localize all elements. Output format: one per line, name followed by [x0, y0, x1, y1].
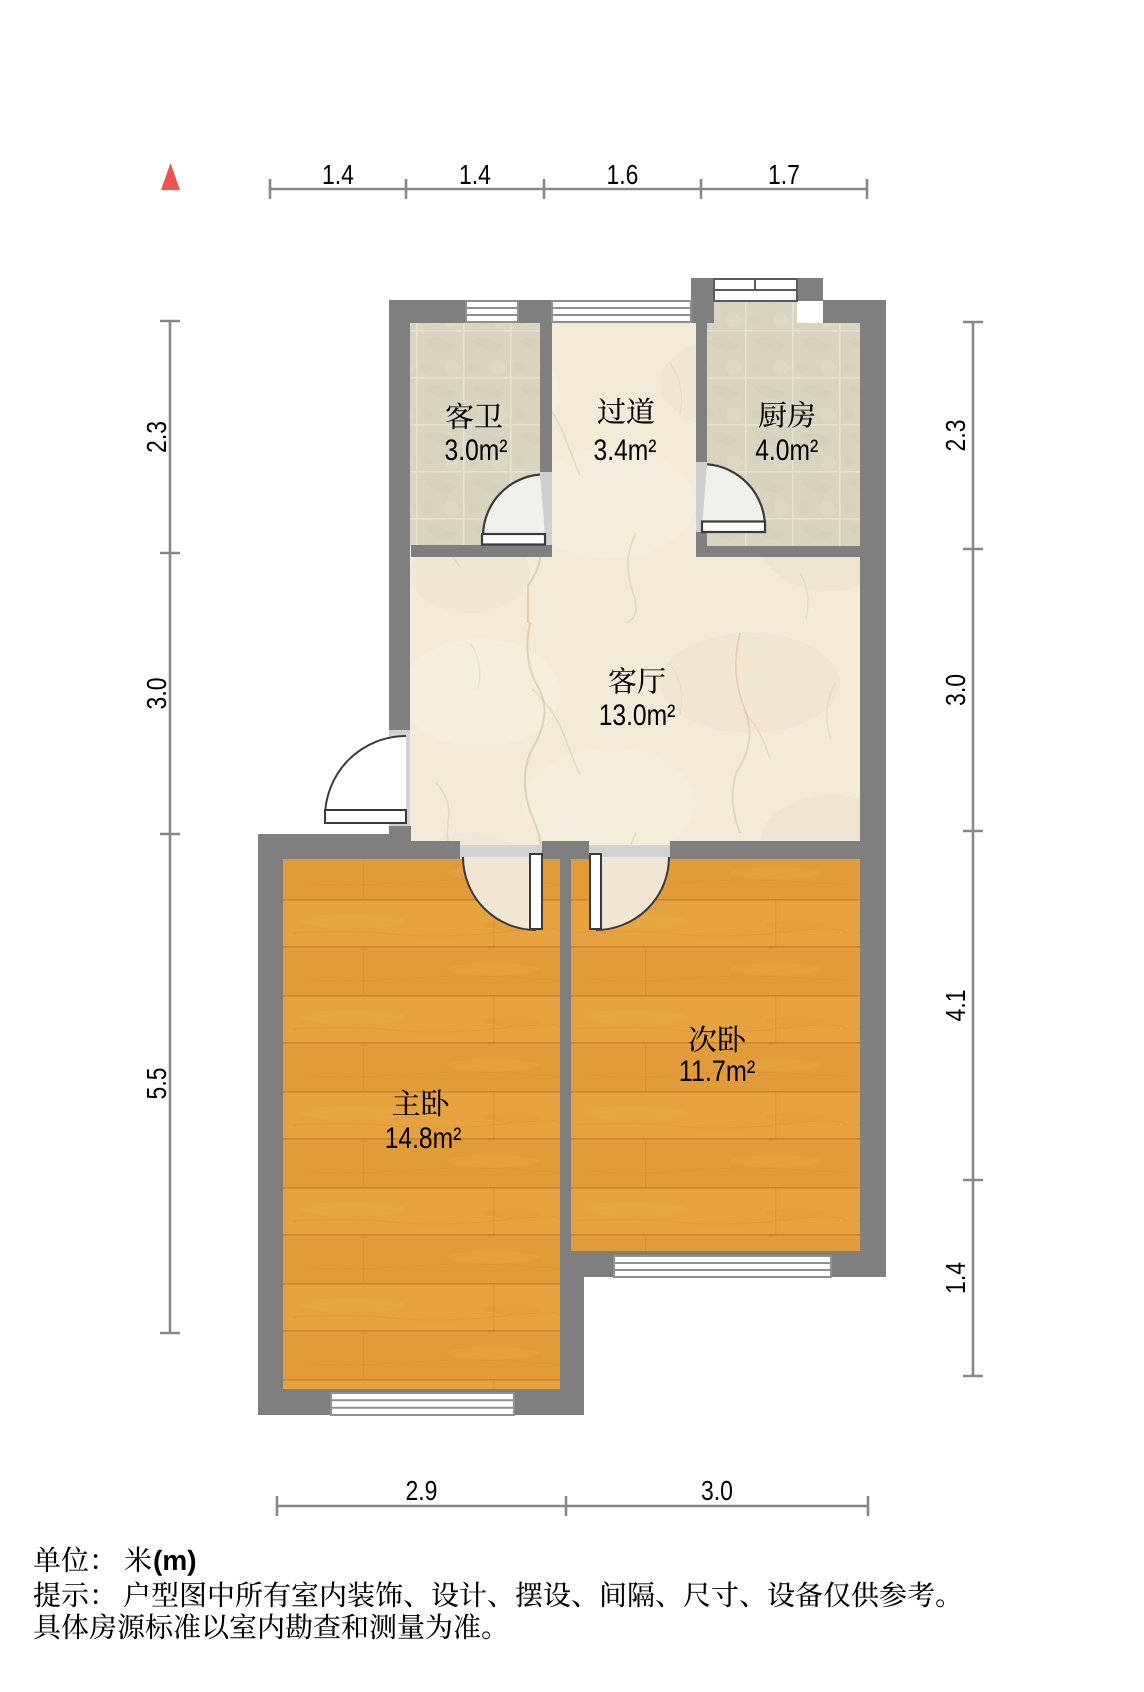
svg-text:4.0m²: 4.0m²	[755, 434, 818, 467]
svg-text:3.0m²: 3.0m²	[445, 434, 508, 467]
svg-text:11.7m²: 11.7m²	[679, 1055, 756, 1088]
svg-text:14.8m²: 14.8m²	[385, 1122, 462, 1155]
svg-text:13.0m²: 13.0m²	[599, 699, 676, 732]
svg-text:2.3: 2.3	[940, 420, 971, 452]
svg-text:2.9: 2.9	[406, 1475, 438, 1506]
svg-text:3.0: 3.0	[940, 674, 971, 706]
svg-text:1.6: 1.6	[607, 159, 639, 190]
svg-text:1.4: 1.4	[940, 1262, 971, 1294]
svg-text:3.0: 3.0	[701, 1475, 733, 1506]
svg-text:1.4: 1.4	[459, 159, 491, 190]
svg-text:1.4: 1.4	[322, 159, 354, 190]
svg-text:4.1: 4.1	[940, 990, 971, 1022]
svg-text:3.4m²: 3.4m²	[594, 434, 657, 467]
svg-text:1.7: 1.7	[768, 159, 800, 190]
svg-text:2.3: 2.3	[141, 421, 172, 453]
svg-text:3.0: 3.0	[141, 678, 172, 710]
svg-text:5.5: 5.5	[141, 1068, 172, 1100]
